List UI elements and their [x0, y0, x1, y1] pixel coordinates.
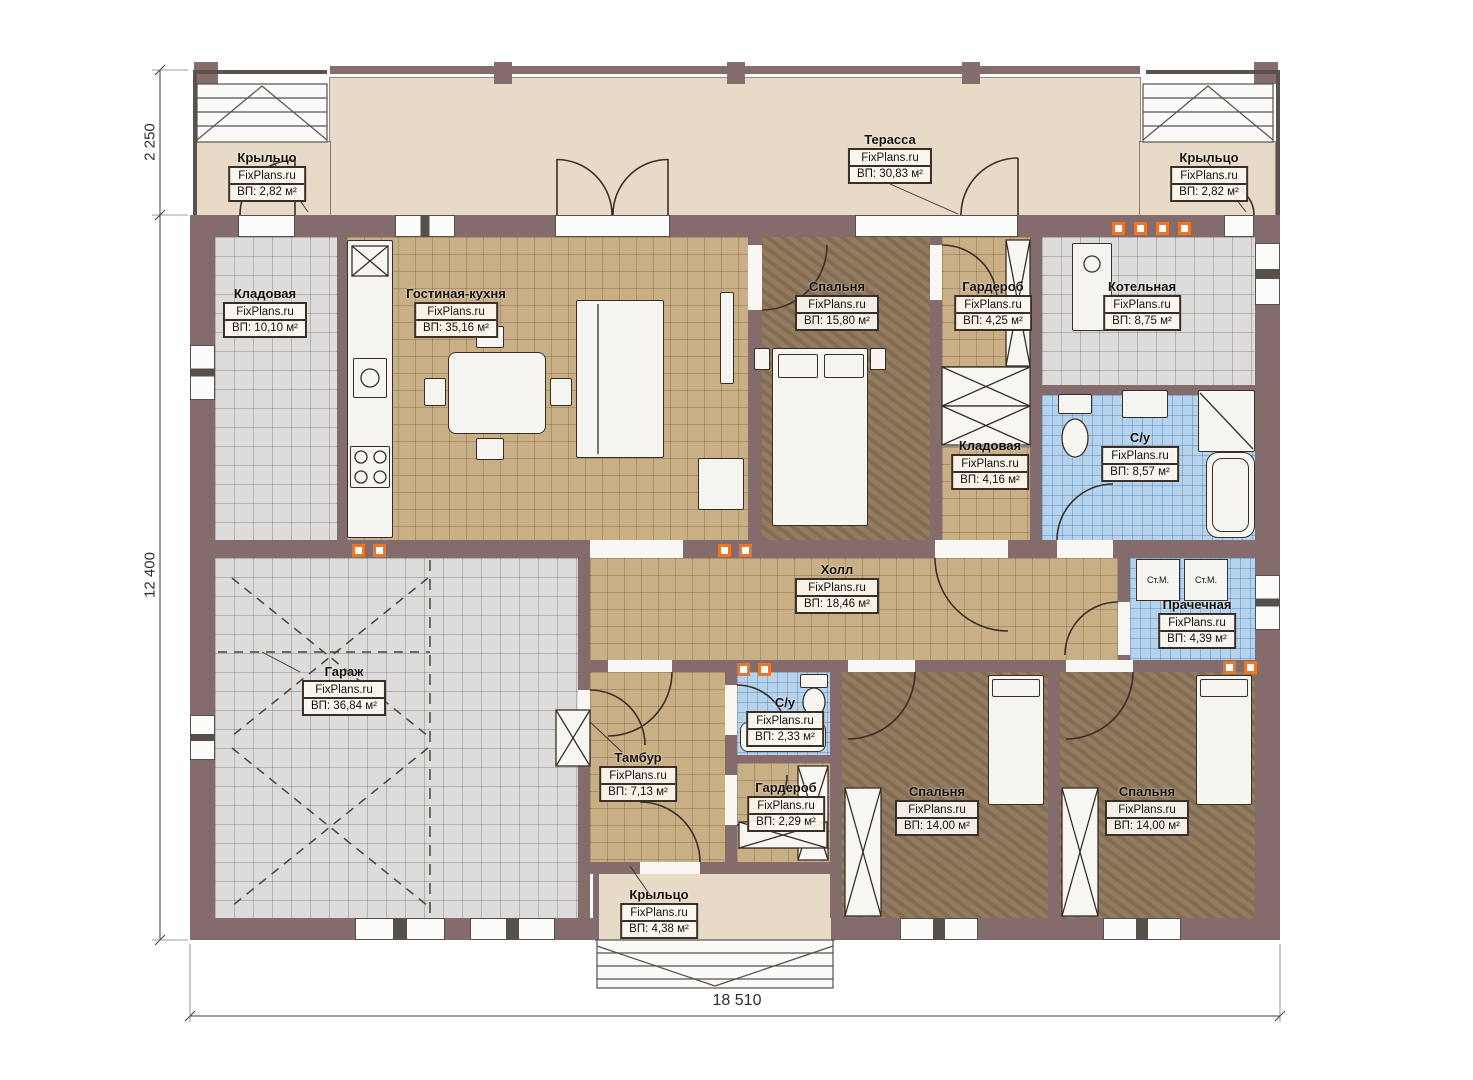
brand-watermark: FixPlans.ru: [1103, 448, 1177, 465]
wall-segment: [737, 755, 830, 763]
room-name: Спальня: [795, 279, 879, 294]
room-name: Крыльцо: [620, 887, 698, 902]
nightstand: [754, 348, 770, 370]
brand-watermark: FixPlans.ru: [897, 802, 977, 819]
room-area: ВП: 2,33 м²: [748, 730, 822, 745]
porch-rail: [1276, 70, 1280, 215]
dimension-house-depth: 12 400: [142, 552, 159, 598]
dimension-house-width: 18 510: [713, 992, 762, 1010]
door-opening-porch-right: [1224, 215, 1254, 237]
room-info-box: FixPlans.ru ВП: 18,46 м²: [795, 578, 879, 614]
door-opening: [748, 245, 762, 310]
room-label-hall: Холл FixPlans.ru ВП: 18,46 м²: [795, 562, 879, 614]
vent-marker: [718, 544, 731, 557]
brand-watermark: FixPlans.ru: [797, 297, 877, 314]
room-area: ВП: 4,39 м²: [1160, 632, 1234, 647]
door-opening: [725, 775, 737, 825]
door-opening-terrace-french: [555, 215, 670, 237]
room-label-porch-top-right: Крыльцо FixPlans.ru ВП: 2,82 м²: [1170, 150, 1248, 202]
room-label-wardrobe: Гардероб FixPlans.ru ВП: 4,25 м²: [954, 279, 1032, 331]
sofa: [576, 300, 664, 458]
room-area: ВП: 10,10 м²: [225, 321, 305, 336]
room-name: Холл: [795, 562, 879, 577]
room-info-box: FixPlans.ru ВП: 10,10 м²: [223, 302, 307, 338]
nightstand: [870, 348, 886, 370]
room-label-pantry-small: Кладовая FixPlans.ru ВП: 4,16 м²: [951, 438, 1029, 490]
room-area: ВП: 4,25 м²: [956, 314, 1030, 329]
room-name: Терасса: [848, 132, 932, 147]
window-opening: [1255, 575, 1280, 630]
room-info-box: FixPlans.ru ВП: 14,00 м²: [895, 800, 979, 836]
window-opening: [355, 918, 445, 940]
passage-opening: [590, 540, 683, 558]
pillow: [824, 354, 864, 378]
room-name: Гардероб: [954, 279, 1032, 294]
room-area: ВП: 14,00 м²: [897, 819, 977, 834]
room-label-wardrobe-small: Гардероб FixPlans.ru ВП: 2,29 м²: [747, 780, 825, 832]
room-floor-pantry: [215, 237, 337, 540]
brand-watermark: FixPlans.ru: [304, 682, 384, 699]
door-opening: [1118, 602, 1130, 655]
room-area: ВП: 18,46 м²: [797, 597, 877, 612]
window-opening: [900, 918, 978, 940]
room-label-garage: Гараж FixPlans.ru ВП: 36,84 м²: [302, 664, 386, 716]
wall-segment: [337, 237, 347, 540]
door-opening: [608, 660, 672, 672]
chair: [424, 378, 446, 406]
toilet: [800, 674, 828, 688]
pillow: [992, 679, 1040, 697]
vent-marker: [1112, 222, 1125, 235]
wall-segment: [590, 660, 1255, 672]
room-label-bedroom-master: Спальня FixPlans.ru ВП: 15,80 м²: [795, 279, 879, 331]
room-floor-living-kitchen: [347, 237, 748, 540]
door-opening: [848, 660, 915, 672]
room-label-bathroom-small: С/у FixPlans.ru ВП: 2,33 м²: [746, 695, 824, 747]
room-info-box: FixPlans.ru ВП: 35,16 м²: [414, 302, 498, 338]
vent-marker: [739, 544, 752, 557]
brand-watermark: FixPlans.ru: [416, 304, 496, 321]
room-info-box: FixPlans.ru ВП: 7,13 м²: [599, 766, 677, 802]
brand-watermark: FixPlans.ru: [953, 456, 1027, 473]
vent-marker: [758, 663, 771, 676]
room-name: Крыльцо: [1170, 150, 1248, 165]
vent-marker: [1134, 222, 1147, 235]
room-label-bedroom-right: Спальня FixPlans.ru ВП: 14,00 м²: [1105, 784, 1189, 836]
room-area: ВП: 14,00 м²: [1107, 819, 1187, 834]
brand-watermark: FixPlans.ru: [230, 168, 304, 185]
brand-watermark: FixPlans.ru: [956, 297, 1030, 314]
wall-segment: [190, 215, 215, 940]
room-label-laundry: Прачечная FixPlans.ru ВП: 4,39 м²: [1158, 597, 1236, 649]
brand-watermark: FixPlans.ru: [601, 768, 675, 785]
room-area: ВП: 35,16 м²: [416, 321, 496, 336]
room-info-box: FixPlans.ru ВП: 4,38 м²: [620, 903, 698, 939]
room-info-box: FixPlans.ru ВП: 4,39 м²: [1158, 613, 1236, 649]
dimension-porch-depth: 2 250: [142, 123, 159, 161]
room-name: Кладовая: [223, 286, 307, 301]
vent-marker: [1244, 661, 1257, 674]
vent-marker: [373, 544, 386, 557]
room-label-living-kitchen: Гостиная-кухня FixPlans.ru ВП: 35,16 м²: [406, 286, 506, 338]
washing-machine: Ст.М.: [1136, 559, 1180, 601]
vent-marker: [352, 544, 365, 557]
room-info-box: FixPlans.ru ВП: 4,25 м²: [954, 295, 1032, 331]
kitchen-sink: [353, 358, 387, 398]
door-opening: [725, 685, 737, 735]
washbasin: [1122, 390, 1168, 418]
room-area: ВП: 2,82 м²: [1172, 185, 1246, 200]
shower: [1198, 390, 1255, 452]
window-opening: [190, 715, 215, 760]
room-info-box: FixPlans.ru ВП: 8,57 м²: [1101, 446, 1179, 482]
room-name: С/у: [746, 695, 824, 710]
wall-segment: [593, 874, 599, 940]
porch-rail: [193, 70, 197, 215]
brand-watermark: FixPlans.ru: [749, 798, 823, 815]
vent-marker: [737, 663, 750, 676]
terrace-post: [962, 62, 980, 84]
room-area: ВП: 30,83 м²: [850, 167, 930, 182]
room-floor-garage: [215, 558, 578, 918]
room-name: Котельная: [1103, 279, 1181, 294]
porch-rail: [193, 70, 327, 74]
room-name: Гардероб: [747, 780, 825, 795]
room-info-box: FixPlans.ru ВП: 2,82 м²: [228, 166, 306, 202]
room-label-terrace: Терасса FixPlans.ru ВП: 30,83 м²: [848, 132, 932, 184]
room-area: ВП: 8,75 м²: [1105, 314, 1179, 329]
room-label-porch-top-left: Крыльцо FixPlans.ru ВП: 2,82 м²: [228, 150, 306, 202]
pillow: [1200, 679, 1248, 697]
room-name: Гостиная-кухня: [406, 286, 506, 301]
brand-watermark: FixPlans.ru: [850, 150, 930, 167]
bathtub-inner: [1212, 458, 1249, 532]
tv-console: [698, 458, 744, 510]
floor-plan: Ст.М. Ст.М.: [0, 0, 1473, 1080]
brand-watermark: FixPlans.ru: [797, 580, 877, 597]
porch-rail: [1146, 70, 1280, 74]
room-label-bathroom-main: С/у FixPlans.ru ВП: 8,57 м²: [1101, 430, 1179, 482]
room-floor-rack-zone: [942, 367, 1030, 447]
room-name: Крыльцо: [228, 150, 306, 165]
room-label-vestibule: Тамбур FixPlans.ru ВП: 7,13 м²: [599, 750, 677, 802]
room-info-box: FixPlans.ru ВП: 14,00 м²: [1105, 800, 1189, 836]
room-info-box: FixPlans.ru ВП: 4,16 м²: [951, 454, 1029, 490]
dining-table: [448, 352, 546, 434]
room-info-box: FixPlans.ru ВП: 2,33 м²: [746, 711, 824, 747]
washing-machine-label: Ст.М.: [1147, 575, 1169, 585]
room-name: Спальня: [1105, 784, 1189, 799]
window-opening: [190, 345, 215, 400]
door-opening-porch-left: [238, 215, 295, 237]
window-opening: [1255, 243, 1280, 305]
door-opening-terrace: [855, 215, 1018, 237]
brand-watermark: FixPlans.ru: [748, 713, 822, 730]
wall-segment: [831, 874, 837, 940]
door-opening: [578, 690, 590, 745]
washing-machine: Ст.М.: [1184, 559, 1228, 601]
door-opening: [930, 245, 942, 300]
door-opening: [935, 540, 1008, 558]
room-area: ВП: 4,16 м²: [953, 473, 1027, 488]
room-info-box: FixPlans.ru ВП: 36,84 м²: [302, 680, 386, 716]
room-info-box: FixPlans.ru ВП: 2,29 м²: [747, 796, 825, 832]
room-info-box: FixPlans.ru ВП: 8,75 м²: [1103, 295, 1181, 331]
tv-panel: [720, 292, 734, 384]
room-info-box: FixPlans.ru ВП: 15,80 м²: [795, 295, 879, 331]
wall-segment: [1048, 672, 1060, 918]
room-label-boiler: Котельная FixPlans.ru ВП: 8,75 м²: [1103, 279, 1181, 331]
room-area: ВП: 7,13 м²: [601, 785, 675, 800]
room-label-porch-bottom: Крыльцо FixPlans.ru ВП: 4,38 м²: [620, 887, 698, 939]
brand-watermark: FixPlans.ru: [622, 905, 696, 922]
brand-watermark: FixPlans.ru: [1160, 615, 1234, 632]
room-info-box: FixPlans.ru ВП: 30,83 м²: [848, 148, 932, 184]
room-info-box: FixPlans.ru ВП: 2,82 м²: [1170, 166, 1248, 202]
stove: [350, 446, 390, 488]
room-area: ВП: 2,29 м²: [749, 815, 823, 830]
chair: [550, 378, 572, 406]
room-floor-terrace: [330, 78, 1140, 215]
room-name: С/у: [1101, 430, 1179, 445]
room-area: ВП: 15,80 м²: [797, 314, 877, 329]
chair: [476, 438, 504, 460]
brand-watermark: FixPlans.ru: [225, 304, 305, 321]
room-name: Спальня: [895, 784, 979, 799]
door-opening: [1057, 540, 1113, 558]
room-area: ВП: 2,82 м²: [230, 185, 304, 200]
room-label-pantry: Кладовая FixPlans.ru ВП: 10,10 м²: [223, 286, 307, 338]
room-name: Тамбур: [599, 750, 677, 765]
door-opening: [640, 862, 700, 874]
room-label-bedroom-left: Спальня FixPlans.ru ВП: 14,00 м²: [895, 784, 979, 836]
room-area: ВП: 8,57 м²: [1103, 465, 1177, 480]
washing-machine-label: Ст.М.: [1195, 575, 1217, 585]
vent-marker: [1156, 222, 1169, 235]
pillow: [778, 354, 818, 378]
room-name: Прачечная: [1158, 597, 1236, 612]
toilet: [1058, 394, 1092, 414]
room-name: Гараж: [302, 664, 386, 679]
vent-marker: [1178, 222, 1191, 235]
door-opening: [1066, 660, 1133, 672]
room-area: ВП: 36,84 м²: [304, 699, 384, 714]
vent-marker: [1223, 661, 1236, 674]
room-area: ВП: 4,38 м²: [622, 922, 696, 937]
room-name: Кладовая: [951, 438, 1029, 453]
brand-watermark: FixPlans.ru: [1172, 168, 1246, 185]
brand-watermark: FixPlans.ru: [1105, 297, 1179, 314]
brand-watermark: FixPlans.ru: [1107, 802, 1187, 819]
wall-segment: [590, 862, 835, 874]
window-opening: [395, 215, 455, 237]
terrace-post: [727, 62, 745, 84]
window-opening: [1103, 918, 1181, 940]
terrace-post: [494, 62, 512, 84]
window-opening: [470, 918, 555, 940]
